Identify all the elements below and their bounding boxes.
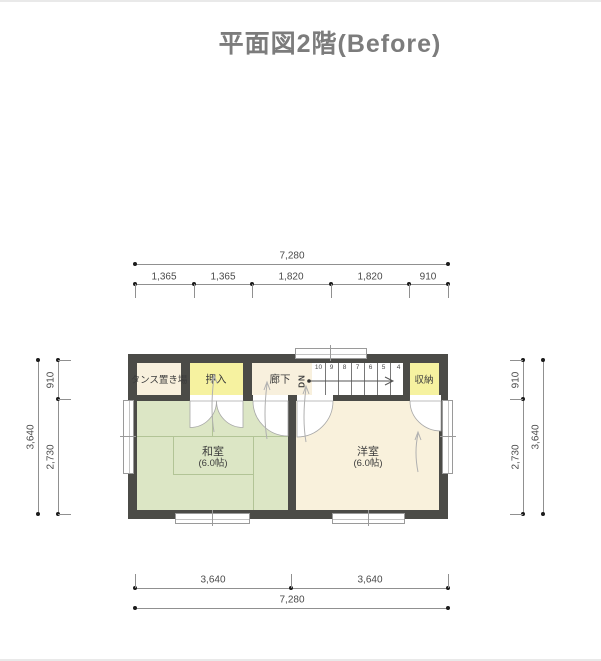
dim-dot xyxy=(133,606,137,610)
stair-step-number: 10 xyxy=(312,364,325,371)
dim-dot xyxy=(446,262,450,266)
dim-bottom-total: 7,280 xyxy=(279,595,304,606)
window-center-tick xyxy=(440,436,456,437)
dim-bottom-seg-2: 3,640 xyxy=(357,575,382,586)
dim-left-seg-1: 910 xyxy=(46,372,57,389)
room-youshitsu-label: 洋室 (6.0帖) xyxy=(353,446,382,470)
tatami-line xyxy=(173,436,174,474)
dim-line xyxy=(135,284,448,285)
dim-tick xyxy=(409,284,410,298)
tatami-line xyxy=(253,436,254,510)
dim-tick xyxy=(448,574,449,588)
dim-tick xyxy=(448,284,449,298)
dim-line xyxy=(38,360,39,514)
room-washitsu-label: 和室 (6.0帖) xyxy=(198,446,227,470)
tatami-line xyxy=(212,401,213,436)
room-tansu-storage: タンス置き場 xyxy=(137,363,181,395)
tatami-line xyxy=(173,474,253,475)
dim-top-seg-2: 1,365 xyxy=(210,272,235,283)
stair-step-number: 7 xyxy=(351,364,364,371)
dim-dot xyxy=(133,262,137,266)
room-youshitsu: 洋室 (6.0帖) xyxy=(296,401,439,510)
dim-top-seg-3: 1,820 xyxy=(278,272,303,283)
dim-tick xyxy=(135,284,136,298)
dim-tick xyxy=(291,574,292,588)
dim-line xyxy=(135,608,448,609)
floor-plan-page: 平面図2階(Before) 7,280 1,365 1,365 1,820 1,… xyxy=(0,0,601,661)
window-sash-line xyxy=(448,401,449,473)
room-tansu-label: タンス置き場 xyxy=(131,372,188,386)
window-center-tick xyxy=(212,510,213,526)
stair-step-number: 6 xyxy=(364,364,377,371)
dim-right-seg-2: 2,730 xyxy=(511,444,522,469)
window-sash-line xyxy=(296,354,366,355)
dim-left-seg-2: 2,730 xyxy=(46,444,57,469)
dim-bottom-seg-1: 3,640 xyxy=(200,575,225,586)
dim-tick xyxy=(58,399,71,400)
dim-tick xyxy=(510,514,523,515)
stair-step-number: 4 xyxy=(392,364,405,371)
dim-dot xyxy=(36,358,40,362)
window-right xyxy=(442,400,453,474)
stair-step-number: 5 xyxy=(377,364,390,371)
stairs-down-label: DN xyxy=(298,374,307,388)
stair-tread-line xyxy=(390,363,391,395)
room-washitsu: 和室 (6.0帖) xyxy=(137,401,288,510)
dim-dot xyxy=(446,606,450,610)
window-left xyxy=(123,400,134,474)
room-oshiire-label: 押入 xyxy=(206,372,227,387)
tatami-line xyxy=(137,436,288,437)
floor-plan: タンス置き場 押入 廊下 10 9 8 7 6 5 4 DN 収納 xyxy=(128,354,448,519)
window-center-tick xyxy=(368,510,369,526)
dim-top-total: 7,280 xyxy=(279,251,304,262)
stair-step-number: 8 xyxy=(338,364,351,371)
dim-line xyxy=(543,360,544,514)
room-washitsu-size: (6.0帖) xyxy=(198,458,227,470)
room-shuunou-storage: 収納 xyxy=(410,363,439,395)
dim-dot xyxy=(541,358,545,362)
dim-tick xyxy=(58,514,71,515)
window-top-stairs xyxy=(295,348,367,359)
window-center-tick xyxy=(120,436,136,437)
dim-line xyxy=(58,360,59,514)
room-oshiire-closet: 押入 xyxy=(190,363,243,395)
window-center-tick xyxy=(330,345,331,361)
stair-step-number: 9 xyxy=(325,364,338,371)
dim-tick xyxy=(510,399,523,400)
dim-left-total: 3,640 xyxy=(26,424,37,449)
dim-tick xyxy=(135,574,136,588)
dim-line xyxy=(523,360,524,514)
dim-top-seg-1: 1,365 xyxy=(151,272,176,283)
dim-tick xyxy=(510,360,523,361)
dim-tick xyxy=(252,284,253,298)
dim-dot xyxy=(36,512,40,516)
dim-line xyxy=(135,264,448,265)
window-sash-line xyxy=(129,401,130,473)
room-corridor-label: 廊下 xyxy=(270,372,291,387)
dim-right-seg-1: 910 xyxy=(511,372,522,389)
room-washitsu-name: 和室 xyxy=(198,446,227,458)
dim-tick xyxy=(331,284,332,298)
dim-right-total: 3,640 xyxy=(531,424,542,449)
room-youshitsu-size: (6.0帖) xyxy=(353,458,382,470)
dim-top-seg-5: 910 xyxy=(420,272,437,283)
dim-tick xyxy=(58,360,71,361)
room-youshitsu-name: 洋室 xyxy=(353,446,382,458)
room-shuunou-label: 収納 xyxy=(414,372,433,386)
page-title: 平面図2階(Before) xyxy=(219,24,442,60)
stairs: 10 9 8 7 6 5 4 xyxy=(312,363,403,395)
dim-top-seg-4: 1,820 xyxy=(357,272,382,283)
dim-dot xyxy=(541,512,545,516)
dim-tick xyxy=(194,284,195,298)
